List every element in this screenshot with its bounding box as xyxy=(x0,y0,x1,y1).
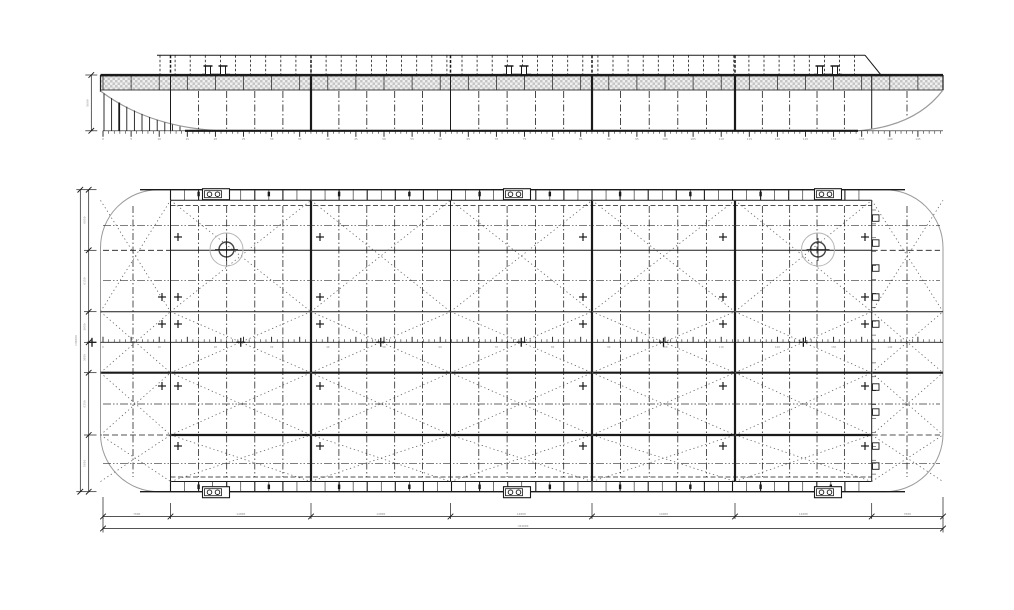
svg-text:145: 145 xyxy=(915,137,921,141)
svg-text:70: 70 xyxy=(495,137,499,141)
svg-text:110: 110 xyxy=(719,345,724,349)
svg-text:14000: 14000 xyxy=(236,512,245,516)
svg-text:50: 50 xyxy=(382,137,386,141)
svg-text:90: 90 xyxy=(607,137,611,141)
svg-text:0: 0 xyxy=(102,137,104,141)
svg-text:30: 30 xyxy=(270,137,274,141)
svg-text:≈30000: ≈30000 xyxy=(74,335,78,346)
svg-text:80: 80 xyxy=(551,137,555,141)
svg-text:115: 115 xyxy=(747,137,753,141)
svg-text:40: 40 xyxy=(326,345,330,349)
svg-text:120: 120 xyxy=(775,345,780,349)
svg-text:100: 100 xyxy=(662,137,668,141)
svg-text:20: 20 xyxy=(214,137,218,141)
svg-text:60: 60 xyxy=(439,345,443,349)
bollard-symbol xyxy=(203,487,230,498)
svg-text:120: 120 xyxy=(775,137,781,141)
svg-text:80: 80 xyxy=(551,345,555,349)
svg-text:40: 40 xyxy=(326,137,330,141)
svg-text:6250: 6250 xyxy=(83,400,87,407)
svg-text:20: 20 xyxy=(214,345,218,349)
svg-text:5: 5 xyxy=(130,137,132,141)
svg-text:25: 25 xyxy=(242,137,246,141)
ship-general-arrangement-drawing: 5600051015202530354045505560657075808590… xyxy=(0,0,1014,610)
svg-text:45: 45 xyxy=(354,137,358,141)
bollard-symbol xyxy=(815,487,842,498)
svg-text:85: 85 xyxy=(579,137,583,141)
drawing-sheet: 5600051015202530354045505560657075808590… xyxy=(0,0,1014,610)
svg-text:110: 110 xyxy=(718,137,724,141)
svg-text:90: 90 xyxy=(607,345,611,349)
svg-text:14000: 14000 xyxy=(376,512,385,516)
svg-text:14000: 14000 xyxy=(659,512,668,516)
svg-text:65: 65 xyxy=(466,137,470,141)
svg-text:6050: 6050 xyxy=(83,216,87,223)
svg-text:≈84000: ≈84000 xyxy=(518,524,529,528)
sheer-strake-band xyxy=(101,76,944,90)
svg-text:14000: 14000 xyxy=(799,512,808,516)
svg-text:95: 95 xyxy=(635,137,639,141)
svg-text:3050: 3050 xyxy=(83,354,87,361)
svg-text:130: 130 xyxy=(831,345,836,349)
svg-text:30: 30 xyxy=(270,345,274,349)
svg-text:50: 50 xyxy=(382,345,386,349)
svg-text:55: 55 xyxy=(410,137,414,141)
svg-text:6150: 6150 xyxy=(83,277,87,284)
svg-text:35: 35 xyxy=(298,137,302,141)
svg-text:5650: 5650 xyxy=(83,460,87,467)
bollard-symbol xyxy=(815,189,842,200)
svg-text:15: 15 xyxy=(185,137,189,141)
bollard-symbol xyxy=(504,189,531,200)
svg-text:60: 60 xyxy=(438,137,442,141)
svg-text:130: 130 xyxy=(831,137,837,141)
bollard-symbol xyxy=(203,189,230,200)
svg-text:125: 125 xyxy=(803,137,809,141)
svg-text:135: 135 xyxy=(859,137,865,141)
svg-text:5600: 5600 xyxy=(85,99,89,106)
svg-text:70: 70 xyxy=(495,345,499,349)
svg-text:14000: 14000 xyxy=(517,512,526,516)
svg-text:7000: 7000 xyxy=(133,512,140,516)
svg-text:105: 105 xyxy=(690,137,696,141)
svg-text:7000: 7000 xyxy=(904,512,911,516)
svg-text:10: 10 xyxy=(157,137,161,141)
svg-text:140: 140 xyxy=(887,137,893,141)
svg-text:75: 75 xyxy=(523,137,527,141)
svg-text:10: 10 xyxy=(158,345,162,349)
svg-text:140: 140 xyxy=(887,345,892,349)
svg-text:3050: 3050 xyxy=(83,323,87,330)
bollard-symbol xyxy=(504,487,531,498)
